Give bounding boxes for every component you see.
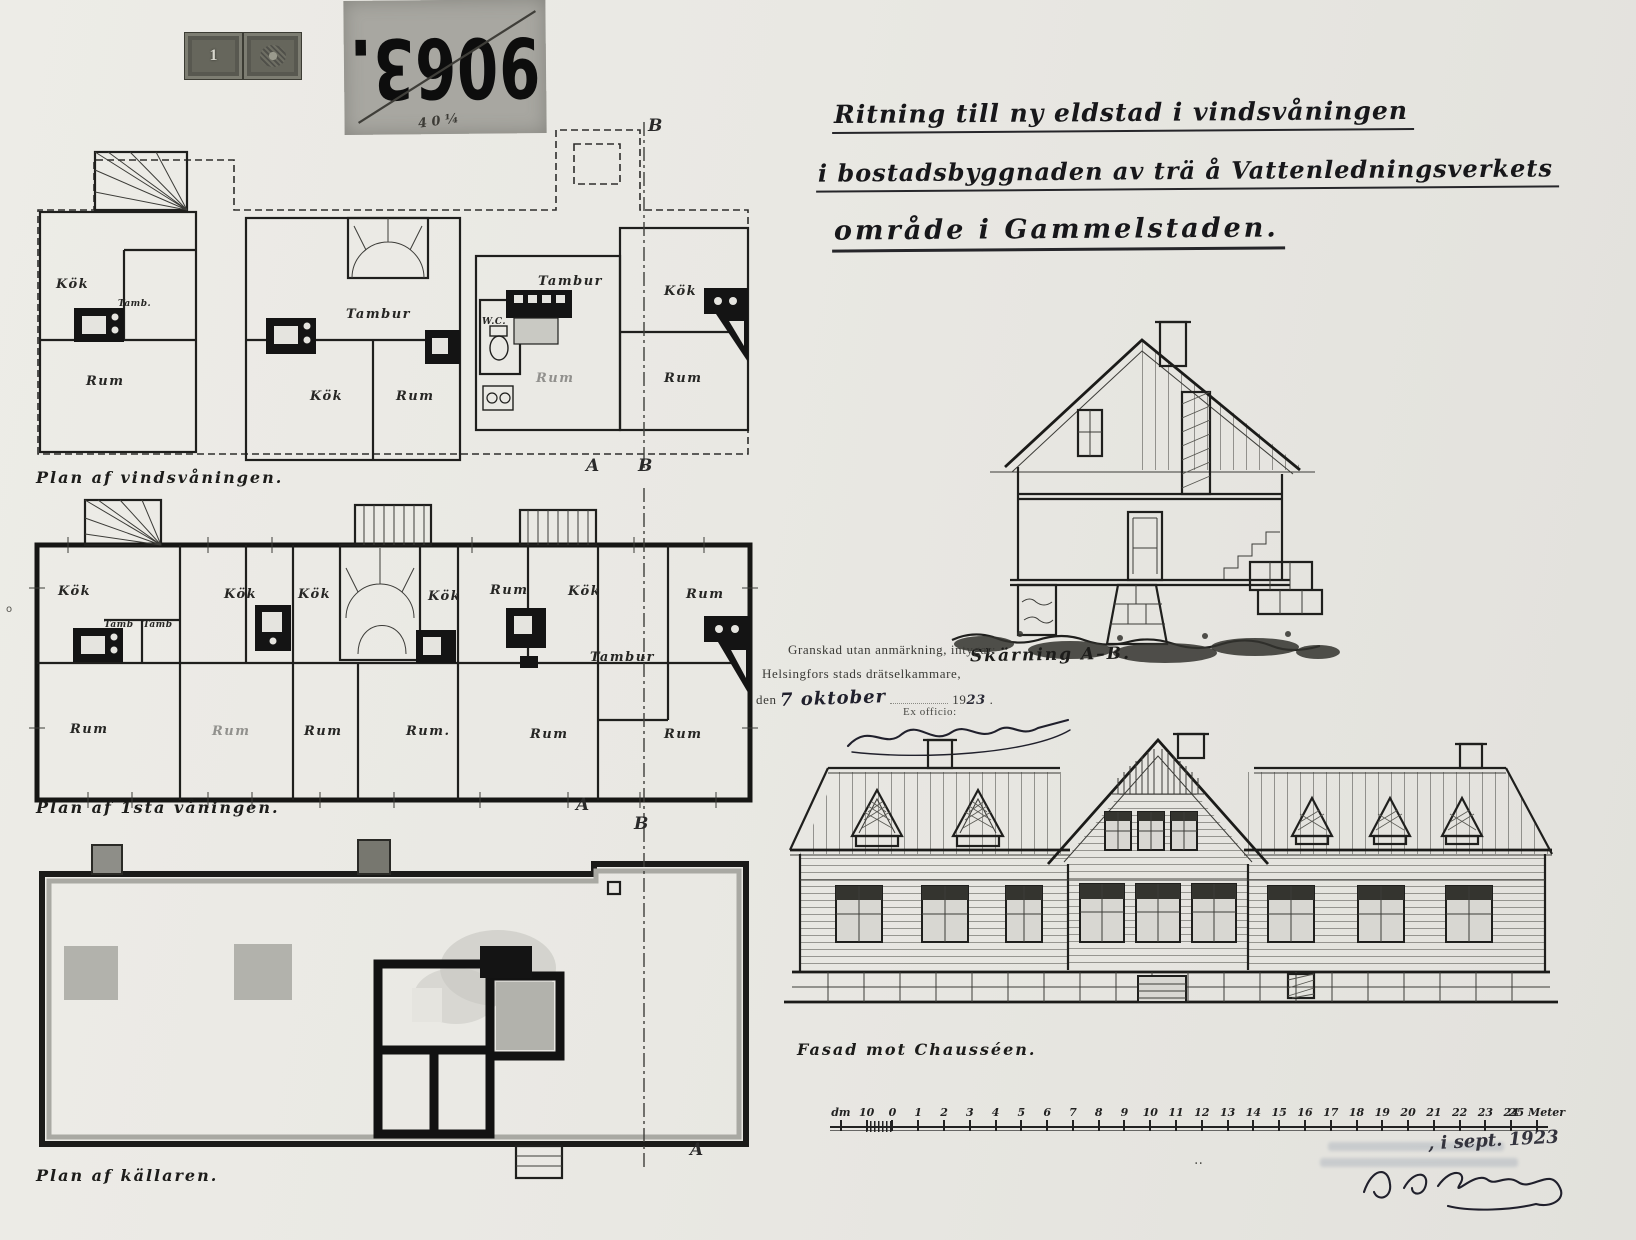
scale-number: 2 xyxy=(940,1106,948,1119)
facade-dormers xyxy=(852,790,1482,846)
approval-line-2: Helsingfors stads drätselkammare, xyxy=(762,666,961,682)
section-roof xyxy=(990,322,1315,474)
scale-number: 15 xyxy=(1272,1106,1287,1119)
scale-number: 16 xyxy=(1297,1106,1312,1119)
facade-caption: Fasad mot Chausséen. xyxy=(797,1040,1037,1059)
room-label: Kök xyxy=(56,277,89,292)
scale-number: 20 xyxy=(1400,1106,1415,1119)
room-label: Rum xyxy=(86,374,125,389)
scale-number: 17 xyxy=(1323,1106,1338,1119)
scale-number: 0 xyxy=(889,1106,897,1119)
section-marker-a: A xyxy=(576,795,589,815)
room-label: Kök xyxy=(310,389,343,404)
room-label: Kök xyxy=(224,587,257,602)
section-marker-b: B xyxy=(638,456,652,476)
facade-drawing xyxy=(782,732,1560,1024)
scale-number: 7 xyxy=(1069,1106,1077,1119)
facade-central-gable xyxy=(1048,740,1268,970)
room-label: Rum xyxy=(490,583,529,598)
scale-number: 9 xyxy=(1121,1106,1129,1119)
room-label: Tamb xyxy=(104,620,133,630)
scale-number: 6 xyxy=(1043,1106,1051,1119)
approval-date-handwritten: 7 oktober xyxy=(780,686,887,711)
room-label: Kök xyxy=(58,584,91,599)
room-label: Rum xyxy=(212,724,251,739)
approval-year-printed: 19 xyxy=(952,692,966,707)
scale-number: 1 xyxy=(914,1106,922,1119)
room-label: Tambur xyxy=(346,307,411,322)
scale-number: dm xyxy=(831,1106,850,1119)
attic-wc-fixtures xyxy=(483,326,513,410)
room-label: Kök xyxy=(664,284,697,299)
scale-dm-hatch xyxy=(866,1121,893,1132)
attic-stoves xyxy=(74,288,748,364)
revenue-stamp-left: 1 xyxy=(184,32,243,80)
room-label: Rum. xyxy=(406,724,451,739)
scale-number: 12 xyxy=(1194,1106,1209,1119)
section-interior xyxy=(1010,392,1290,585)
section-foundation xyxy=(1018,562,1322,644)
section-marker-a: A xyxy=(690,1140,703,1160)
scale-number: 23 xyxy=(1478,1106,1493,1119)
revenue-stamp-right xyxy=(243,32,302,80)
room-label: Rum xyxy=(396,389,435,404)
cellar-entry-steps xyxy=(516,1146,562,1178)
scale-number: 3 xyxy=(966,1106,974,1119)
scale-baseline-thin xyxy=(830,1130,1548,1131)
scale-number: 13 xyxy=(1220,1106,1235,1119)
room-label: Rum xyxy=(536,371,575,386)
room-label: Rum xyxy=(70,722,109,737)
cellar-caption: Plan af källaren. xyxy=(36,1166,218,1185)
room-label: Kök xyxy=(428,589,461,604)
footer-mark: .. xyxy=(1194,1152,1203,1168)
attic-plan-caption: Plan af vindsvåningen. xyxy=(36,468,283,487)
section-drawing xyxy=(950,322,1340,657)
title-line-3: område i Gammelstaden. xyxy=(832,212,1285,252)
scale-number: 10 xyxy=(859,1106,874,1119)
room-label: Kök xyxy=(298,587,331,602)
room-label: Kök xyxy=(568,584,601,599)
scale-number: 22 xyxy=(1452,1106,1467,1119)
attic-stairs xyxy=(95,152,424,278)
first-floor-caption: Plan af 1sta våningen. xyxy=(36,798,280,817)
stamp-ornament-icon xyxy=(260,45,286,67)
section-marker-b: B xyxy=(634,814,648,834)
scale-number: 25 Meter xyxy=(1509,1106,1565,1119)
approval-line-1: Granskad utan anmärkning, intygar: xyxy=(788,642,996,658)
room-label: Rum xyxy=(664,727,703,742)
architect-signature xyxy=(1352,1150,1572,1212)
scale-number: 5 xyxy=(1018,1106,1026,1119)
scale-number: 4 xyxy=(992,1106,1000,1119)
room-label: Tambur xyxy=(590,650,655,665)
section-marker-b: B xyxy=(648,116,662,136)
facade-foundation xyxy=(784,972,1558,1002)
approval-year-handwritten: 23 xyxy=(966,693,985,708)
cellar-plan xyxy=(28,828,762,1184)
facade-chimneys xyxy=(923,734,1487,768)
room-label: W.C. xyxy=(482,317,506,327)
title-line-1: Ritning till ny eldstad i vindsvåningen xyxy=(832,96,1414,134)
first-floor-window-ticks xyxy=(29,537,758,808)
scale-number: 8 xyxy=(1095,1106,1103,1119)
room-label: Rum xyxy=(664,371,703,386)
scale-number: 19 xyxy=(1375,1106,1390,1119)
scale-number: 18 xyxy=(1349,1106,1364,1119)
room-label: Tamb. xyxy=(118,299,151,309)
scale-number: 14 xyxy=(1246,1106,1261,1119)
scale-number: 10 xyxy=(1143,1106,1158,1119)
edge-speck: o xyxy=(6,604,12,615)
scale-number: 11 xyxy=(1168,1106,1183,1119)
approval-period: . xyxy=(990,692,994,707)
drawing-sheet: 1 9063. 4 0 ¼ Ritning till ny eldstad i … xyxy=(0,0,1636,1240)
revenue-stamp-value: 1 xyxy=(210,47,218,65)
approval-date-line: den 7 oktober 1923 . xyxy=(756,688,994,709)
cellar-outer-walls xyxy=(42,840,746,1144)
dotted-leader xyxy=(890,691,948,704)
room-label: Rum xyxy=(686,587,725,602)
scale-baseline xyxy=(830,1126,1548,1128)
approval-den: den xyxy=(756,692,777,707)
scale-number: 21 xyxy=(1426,1106,1441,1119)
room-label: Tambur xyxy=(538,274,603,289)
room-label: Rum xyxy=(304,724,343,739)
section-marker-a: A xyxy=(586,456,599,476)
room-label: Rum xyxy=(530,727,569,742)
room-label: Tamb xyxy=(143,620,172,630)
title-line-2: i bostadsbyggnaden av trä å Vattenlednin… xyxy=(816,153,1559,192)
